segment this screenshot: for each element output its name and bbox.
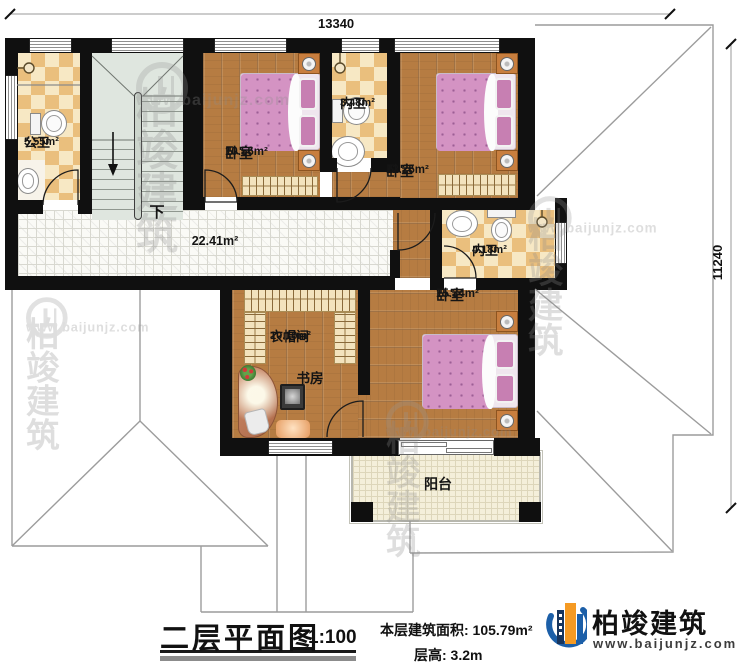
bed-top-right [436, 73, 516, 150]
room-label-hall-area: 22.41m² [180, 234, 250, 248]
stair-treads-left [92, 140, 134, 218]
wall-bedroom-bath [320, 38, 332, 158]
wall-bedroom2-bottom [400, 198, 535, 210]
stair-down-label: 下 [146, 205, 168, 222]
wardrobe-bedroom-top-left [242, 176, 318, 196]
sink-bath-mid [446, 210, 478, 237]
window [268, 441, 333, 454]
window [341, 39, 380, 52]
nightstand [496, 311, 518, 332]
wall-stair-bedroom [183, 38, 203, 210]
wall-hall-right [390, 250, 400, 278]
study-mat [276, 420, 310, 438]
window [556, 222, 566, 264]
wall-publicbath-bottom [5, 200, 43, 214]
toilet-bowl [41, 110, 67, 137]
watermark-logo-icon [26, 297, 68, 339]
wall-hall-top [332, 197, 400, 210]
wall-hall-bottom [5, 276, 395, 290]
nightstand [496, 410, 518, 431]
computer-monitor [280, 384, 305, 410]
window [111, 39, 184, 52]
toilet-tank [487, 209, 516, 218]
nightstand [298, 150, 320, 171]
balcony-column [351, 502, 373, 522]
wall-bathtop-right [387, 38, 400, 158]
floor-area-text: 本层建筑面积: 105.79m² [380, 620, 532, 640]
wall-study-left [220, 283, 232, 450]
stair-treads-right [142, 92, 183, 218]
floor-height-text: 层高: 3.2m [414, 645, 482, 665]
bed-top-left [240, 73, 320, 150]
wall-publicbath-bottom [78, 200, 92, 214]
plan-scale: 1:100 [308, 627, 357, 649]
balcony-column [519, 502, 541, 522]
room-label-study: 书房 [288, 371, 332, 386]
floor-plan-page: 13340 11240 公卫 5.55m² 卧室 10.56m² 内卫 3.48… [0, 0, 750, 668]
window [394, 39, 500, 52]
wall-hall-top [237, 197, 332, 210]
door-threshold-floor [358, 395, 370, 438]
window [29, 39, 72, 52]
wall-hall-top [183, 197, 205, 210]
bed-master [422, 334, 518, 408]
nightstand [496, 150, 518, 171]
stair-handrail [134, 92, 142, 220]
plan-title: 二层平面图 [160, 615, 320, 657]
toilet-tank [30, 113, 41, 135]
nightstand [298, 53, 320, 74]
wall-study-right [358, 283, 370, 395]
balcony-sliding-door [398, 440, 494, 455]
window [214, 39, 287, 52]
cloakroom-rack-left [244, 312, 266, 364]
dimension-height: 11240 [710, 245, 725, 280]
wardrobe-bedroom-top-right [438, 174, 516, 196]
wall-bathtop-bottom [320, 158, 337, 172]
room-label-balcony: 阳台 [414, 477, 462, 493]
wall-bathmid-bottom [476, 278, 567, 290]
brand-logo-icon [545, 598, 587, 658]
toilet-bowl [491, 218, 512, 242]
wall-publicbath-stair [80, 38, 92, 214]
wall-right-upper [518, 38, 535, 210]
dimension-width: 13340 [318, 16, 354, 31]
nightstand [496, 53, 518, 74]
wall-master-right [518, 290, 535, 448]
sink-public-bath [17, 168, 39, 194]
window [6, 75, 17, 140]
cloakroom-rack-right [334, 312, 356, 364]
plant [240, 365, 256, 381]
brand-url: www.baijunjz.com [593, 636, 737, 651]
wall-bottom [494, 438, 540, 456]
